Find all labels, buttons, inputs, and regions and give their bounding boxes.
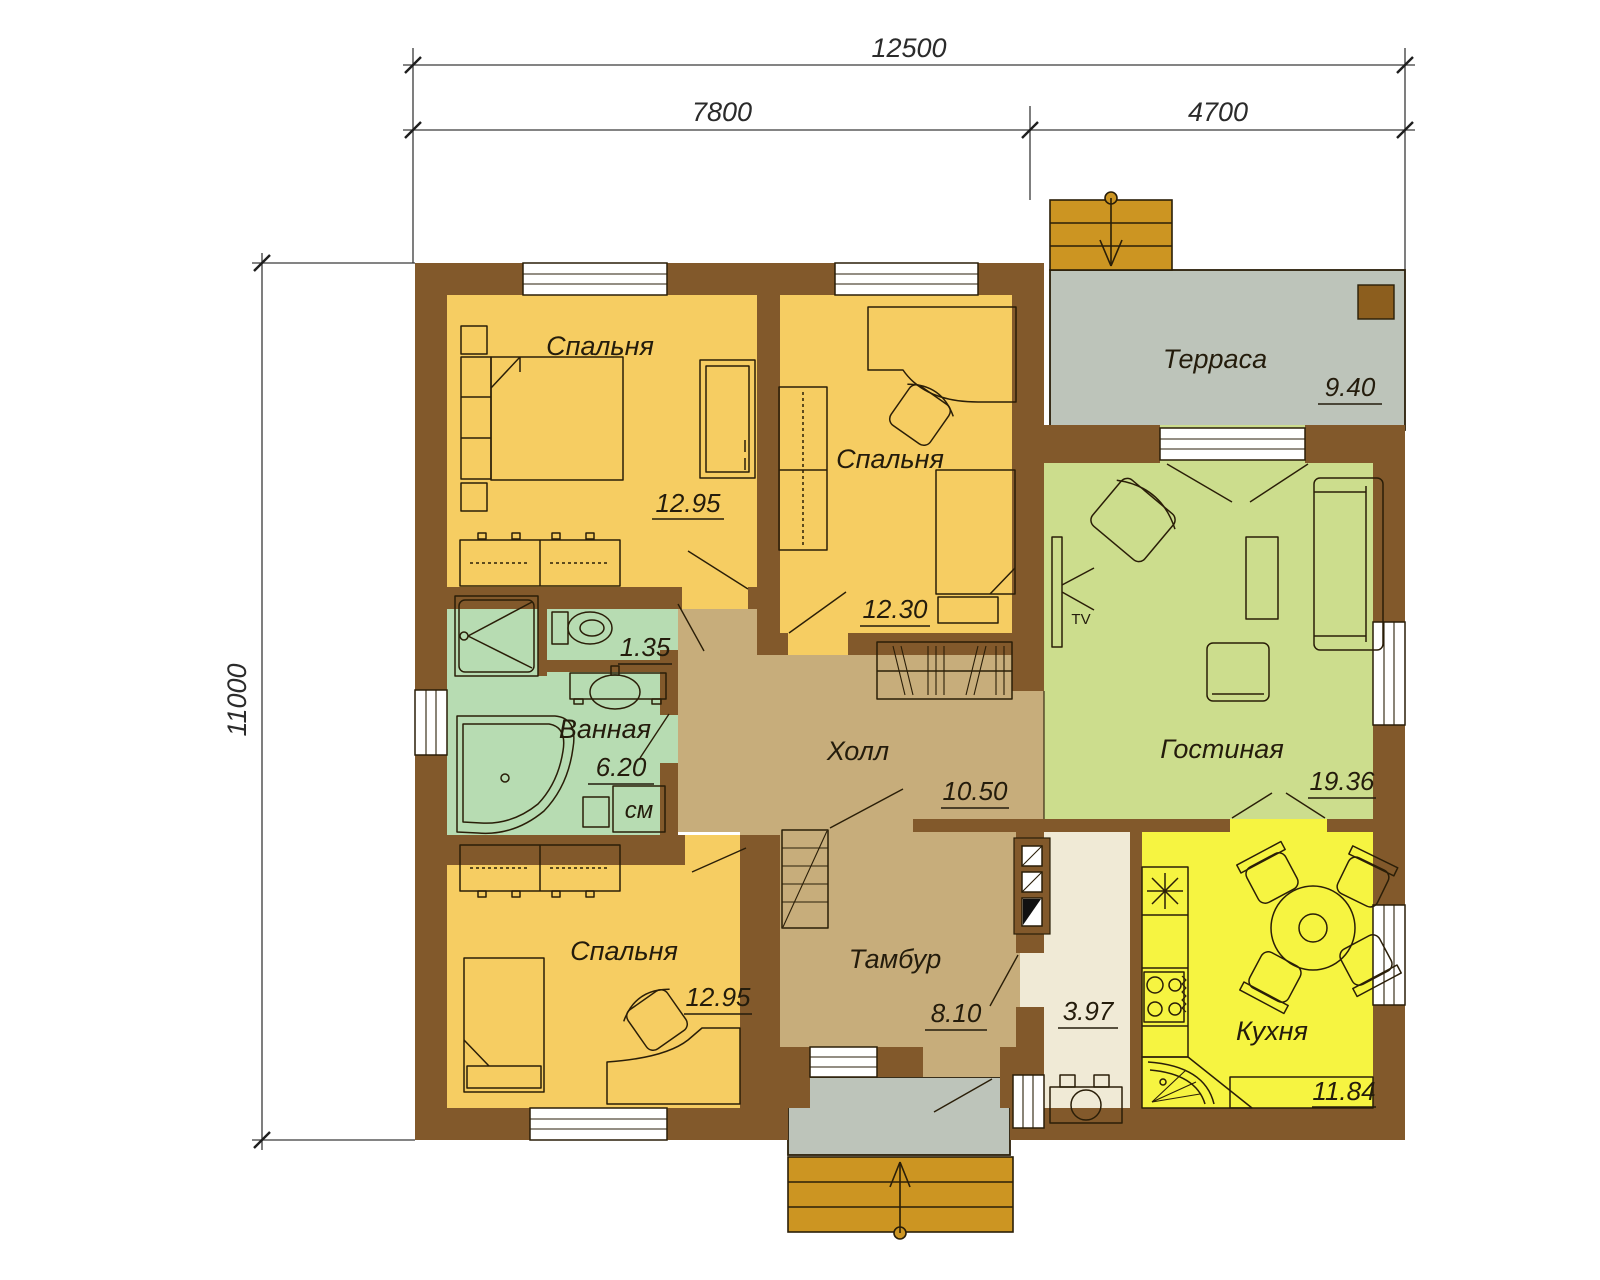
window-living-terrace <box>1160 428 1305 460</box>
area-utility: 3.97 <box>1063 996 1115 1026</box>
area-hall: 10.50 <box>942 776 1008 806</box>
window-bedroom1 <box>523 263 667 295</box>
label-terrace: Терраса <box>1163 344 1267 374</box>
dim-overall-width: 12500 <box>871 33 946 63</box>
label-bedroom3: Спальня <box>570 936 678 966</box>
porch-area <box>788 1077 1010 1155</box>
area-living: 19.36 <box>1309 766 1375 796</box>
label-bedroom2: Спальня <box>836 444 944 474</box>
svg-text:TV: TV <box>1071 611 1090 628</box>
area-kitchen: 11.84 <box>1312 1076 1375 1106</box>
floor-plan-page: 12500 7800 4700 11000 <box>0 0 1600 1280</box>
dim-right-span: 4700 <box>1188 97 1248 127</box>
electrical-panel <box>1014 838 1050 934</box>
dim-left-span: 7800 <box>692 97 752 127</box>
label-bath: Ванная <box>559 714 651 744</box>
window-bath <box>415 690 447 755</box>
area-terrace: 9.40 <box>1325 372 1376 402</box>
area-vestibule: 8.10 <box>931 998 982 1028</box>
window-living-right <box>1373 622 1405 725</box>
area-bath: 6.20 <box>596 752 647 782</box>
floor-bedroom3 <box>447 835 740 1108</box>
window-bedroom3 <box>530 1108 667 1140</box>
floor-plan-drawing: 12500 7800 4700 11000 <box>0 0 1600 1280</box>
window-vestibule <box>810 1047 877 1077</box>
label-living: Гостиная <box>1160 734 1284 764</box>
area-bedroom2: 12.30 <box>862 594 928 624</box>
label-bedroom1: Спальня <box>546 331 654 361</box>
area-bedroom1: 12.95 <box>655 488 721 518</box>
fridge <box>1147 873 1183 909</box>
window-utility-porch <box>1013 1075 1044 1128</box>
svg-text:см: см <box>625 797 653 824</box>
label-hall: Холл <box>826 736 889 766</box>
label-vestibule: Тамбур <box>849 944 942 974</box>
terrace-post <box>1358 285 1394 319</box>
area-bedroom3: 12.95 <box>685 982 751 1012</box>
label-kitchen: Кухня <box>1236 1016 1308 1046</box>
window-bedroom2 <box>835 263 978 295</box>
porch-steps <box>788 1157 1013 1239</box>
terrace-steps <box>1050 192 1172 270</box>
area-wc: 1.35 <box>620 632 671 662</box>
dim-overall-depth: 11000 <box>222 663 252 736</box>
